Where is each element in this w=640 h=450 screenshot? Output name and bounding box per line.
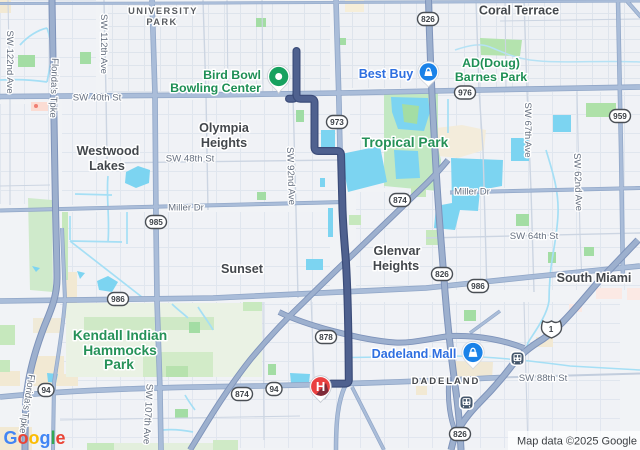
svg-text:986: 986 — [471, 282, 485, 291]
svg-text:1: 1 — [549, 325, 554, 334]
svg-text:SW 40th St: SW 40th St — [73, 93, 122, 104]
svg-text:SW 92nd Ave: SW 92nd Ave — [284, 147, 297, 205]
svg-text:SW 64th St: SW 64th St — [510, 231, 559, 242]
svg-text:959: 959 — [613, 112, 627, 121]
svg-text:Bowling Center: Bowling Center — [170, 81, 261, 95]
svg-text:Lakes: Lakes — [89, 159, 125, 173]
svg-text:976: 976 — [458, 89, 472, 98]
svg-text:DADELAND: DADELAND — [412, 376, 481, 387]
svg-text:Map data ©2025 Google: Map data ©2025 Google — [517, 436, 637, 448]
svg-text:Miller Dr: Miller Dr — [168, 203, 205, 214]
svg-text:SW 67th Ave: SW 67th Ave — [522, 102, 533, 157]
svg-text:826: 826 — [421, 15, 435, 24]
svg-text:Bird Bowl: Bird Bowl — [203, 68, 261, 82]
svg-text:UNIVERSITY: UNIVERSITY — [128, 6, 198, 16]
svg-text:AD(Doug): AD(Doug) — [462, 56, 520, 70]
svg-text:874: 874 — [235, 390, 249, 399]
svg-text:Heights: Heights — [373, 259, 419, 273]
svg-text:985: 985 — [149, 218, 163, 227]
svg-text:Coral Terrace: Coral Terrace — [479, 4, 559, 18]
svg-text:Westwood: Westwood — [77, 144, 140, 158]
svg-text:SW 112th Ave: SW 112th Ave — [98, 14, 109, 74]
svg-text:Best Buy: Best Buy — [359, 67, 414, 81]
svg-text:Hammocks: Hammocks — [83, 343, 157, 358]
svg-text:Florida's Tpke: Florida's Tpke — [47, 58, 60, 118]
svg-text:Sunset: Sunset — [221, 262, 264, 276]
svg-text:PARK: PARK — [146, 17, 177, 27]
svg-text:826: 826 — [435, 270, 449, 279]
svg-text:Park: Park — [104, 357, 134, 372]
svg-text:Glenvar: Glenvar — [374, 244, 421, 258]
svg-text:SW 48th St: SW 48th St — [166, 154, 215, 165]
svg-text:SW 88th St: SW 88th St — [519, 373, 568, 384]
svg-text:Dadeland Mall: Dadeland Mall — [372, 347, 457, 361]
svg-text:986: 986 — [111, 295, 125, 304]
svg-text:973: 973 — [330, 118, 344, 127]
svg-text:Olympia: Olympia — [199, 121, 250, 135]
svg-text:Barnes Park: Barnes Park — [455, 70, 527, 84]
svg-text:94: 94 — [41, 386, 51, 395]
svg-text:Miller Dr: Miller Dr — [454, 187, 491, 198]
svg-text:SW 122nd Ave: SW 122nd Ave — [4, 30, 15, 93]
svg-text:South Miami: South Miami — [557, 271, 632, 285]
svg-text:SW 62nd Ave: SW 62nd Ave — [571, 153, 584, 211]
svg-text:878: 878 — [319, 333, 333, 342]
svg-text:Tropical Park: Tropical Park — [362, 135, 449, 150]
svg-text:Heights: Heights — [201, 136, 247, 150]
svg-text:826: 826 — [453, 430, 467, 439]
svg-text:874: 874 — [393, 196, 407, 205]
svg-text:H: H — [316, 379, 325, 394]
svg-text:94: 94 — [269, 385, 279, 394]
svg-text:Google: Google — [4, 428, 66, 448]
svg-text:Kendall Indian: Kendall Indian — [73, 328, 167, 343]
